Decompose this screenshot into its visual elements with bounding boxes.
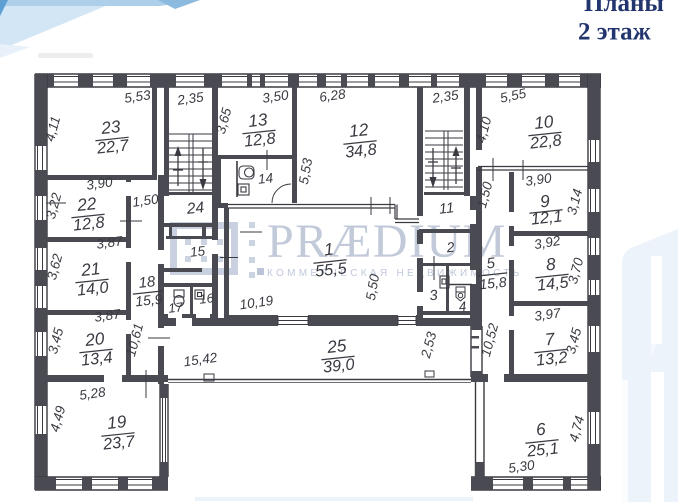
svg-text:5,53: 5,53 [296,156,315,185]
svg-text:3,87: 3,87 [95,233,124,252]
svg-text:13,4: 13,4 [80,348,113,369]
svg-text:17: 17 [168,299,185,316]
svg-text:14: 14 [257,170,274,186]
svg-text:18: 18 [138,273,157,292]
svg-text:25: 25 [325,335,348,357]
svg-text:22,7: 22,7 [95,136,130,157]
svg-text:3,14: 3,14 [564,187,585,216]
svg-text:10: 10 [533,111,555,133]
svg-text:12,1: 12,1 [530,207,563,228]
svg-text:14,0: 14,0 [76,278,109,299]
svg-text:3,92: 3,92 [533,233,562,252]
svg-text:12,8: 12,8 [243,129,276,150]
svg-text:10,61: 10,61 [123,322,146,359]
svg-text:14,5: 14,5 [536,273,570,294]
svg-text:5,50: 5,50 [363,272,382,301]
svg-text:21: 21 [79,258,101,280]
svg-text:3,45: 3,45 [45,326,66,356]
svg-text:3,90: 3,90 [524,170,553,189]
svg-text:12: 12 [348,119,370,141]
svg-text:4: 4 [458,299,467,315]
svg-text:15,8: 15,8 [479,274,508,293]
svg-text:2 этаж: 2 этаж [578,19,652,46]
svg-text:5,55: 5,55 [499,85,528,105]
svg-text:3,50: 3,50 [261,87,290,106]
svg-text:3,87: 3,87 [93,306,122,325]
svg-text:Планы: Планы [584,0,664,17]
svg-text:3: 3 [429,288,439,305]
svg-text:4,74: 4,74 [566,414,587,443]
svg-text:2,35: 2,35 [175,89,205,108]
svg-text:23,7: 23,7 [101,432,136,453]
svg-text:10,19: 10,19 [239,293,275,313]
svg-text:6,28: 6,28 [318,86,347,105]
svg-text:13: 13 [247,109,269,131]
svg-text:23: 23 [99,116,122,138]
svg-text:12,8: 12,8 [72,213,105,234]
svg-text:55,5: 55,5 [314,259,348,280]
svg-text:3,45: 3,45 [563,326,584,356]
svg-text:16: 16 [199,290,216,307]
svg-text:15: 15 [189,243,206,260]
svg-text:3,97: 3,97 [533,305,562,324]
svg-text:3,70: 3,70 [565,256,586,286]
svg-text:2,53: 2,53 [418,330,440,361]
svg-text:39,0: 39,0 [322,355,355,376]
svg-text:5,28: 5,28 [78,384,107,403]
svg-text:3,90: 3,90 [85,174,114,193]
svg-text:20: 20 [83,328,106,350]
svg-text:11: 11 [438,200,455,217]
svg-text:4,49: 4,49 [47,404,68,434]
svg-text:5,30: 5,30 [507,457,536,476]
svg-text:22,8: 22,8 [528,131,562,152]
svg-text:5,53: 5,53 [123,87,152,106]
svg-text:15,9: 15,9 [134,291,163,310]
svg-text:34,8: 34,8 [344,140,377,161]
svg-text:7: 7 [544,328,557,349]
svg-text:6: 6 [535,419,547,440]
svg-text:24: 24 [185,199,205,218]
svg-text:8: 8 [545,254,557,275]
svg-text:19: 19 [106,411,128,433]
svg-text:2,35: 2,35 [430,87,460,106]
svg-text:15,42: 15,42 [183,350,219,370]
svg-text:22: 22 [75,193,98,215]
svg-text:1,50: 1,50 [131,191,160,210]
